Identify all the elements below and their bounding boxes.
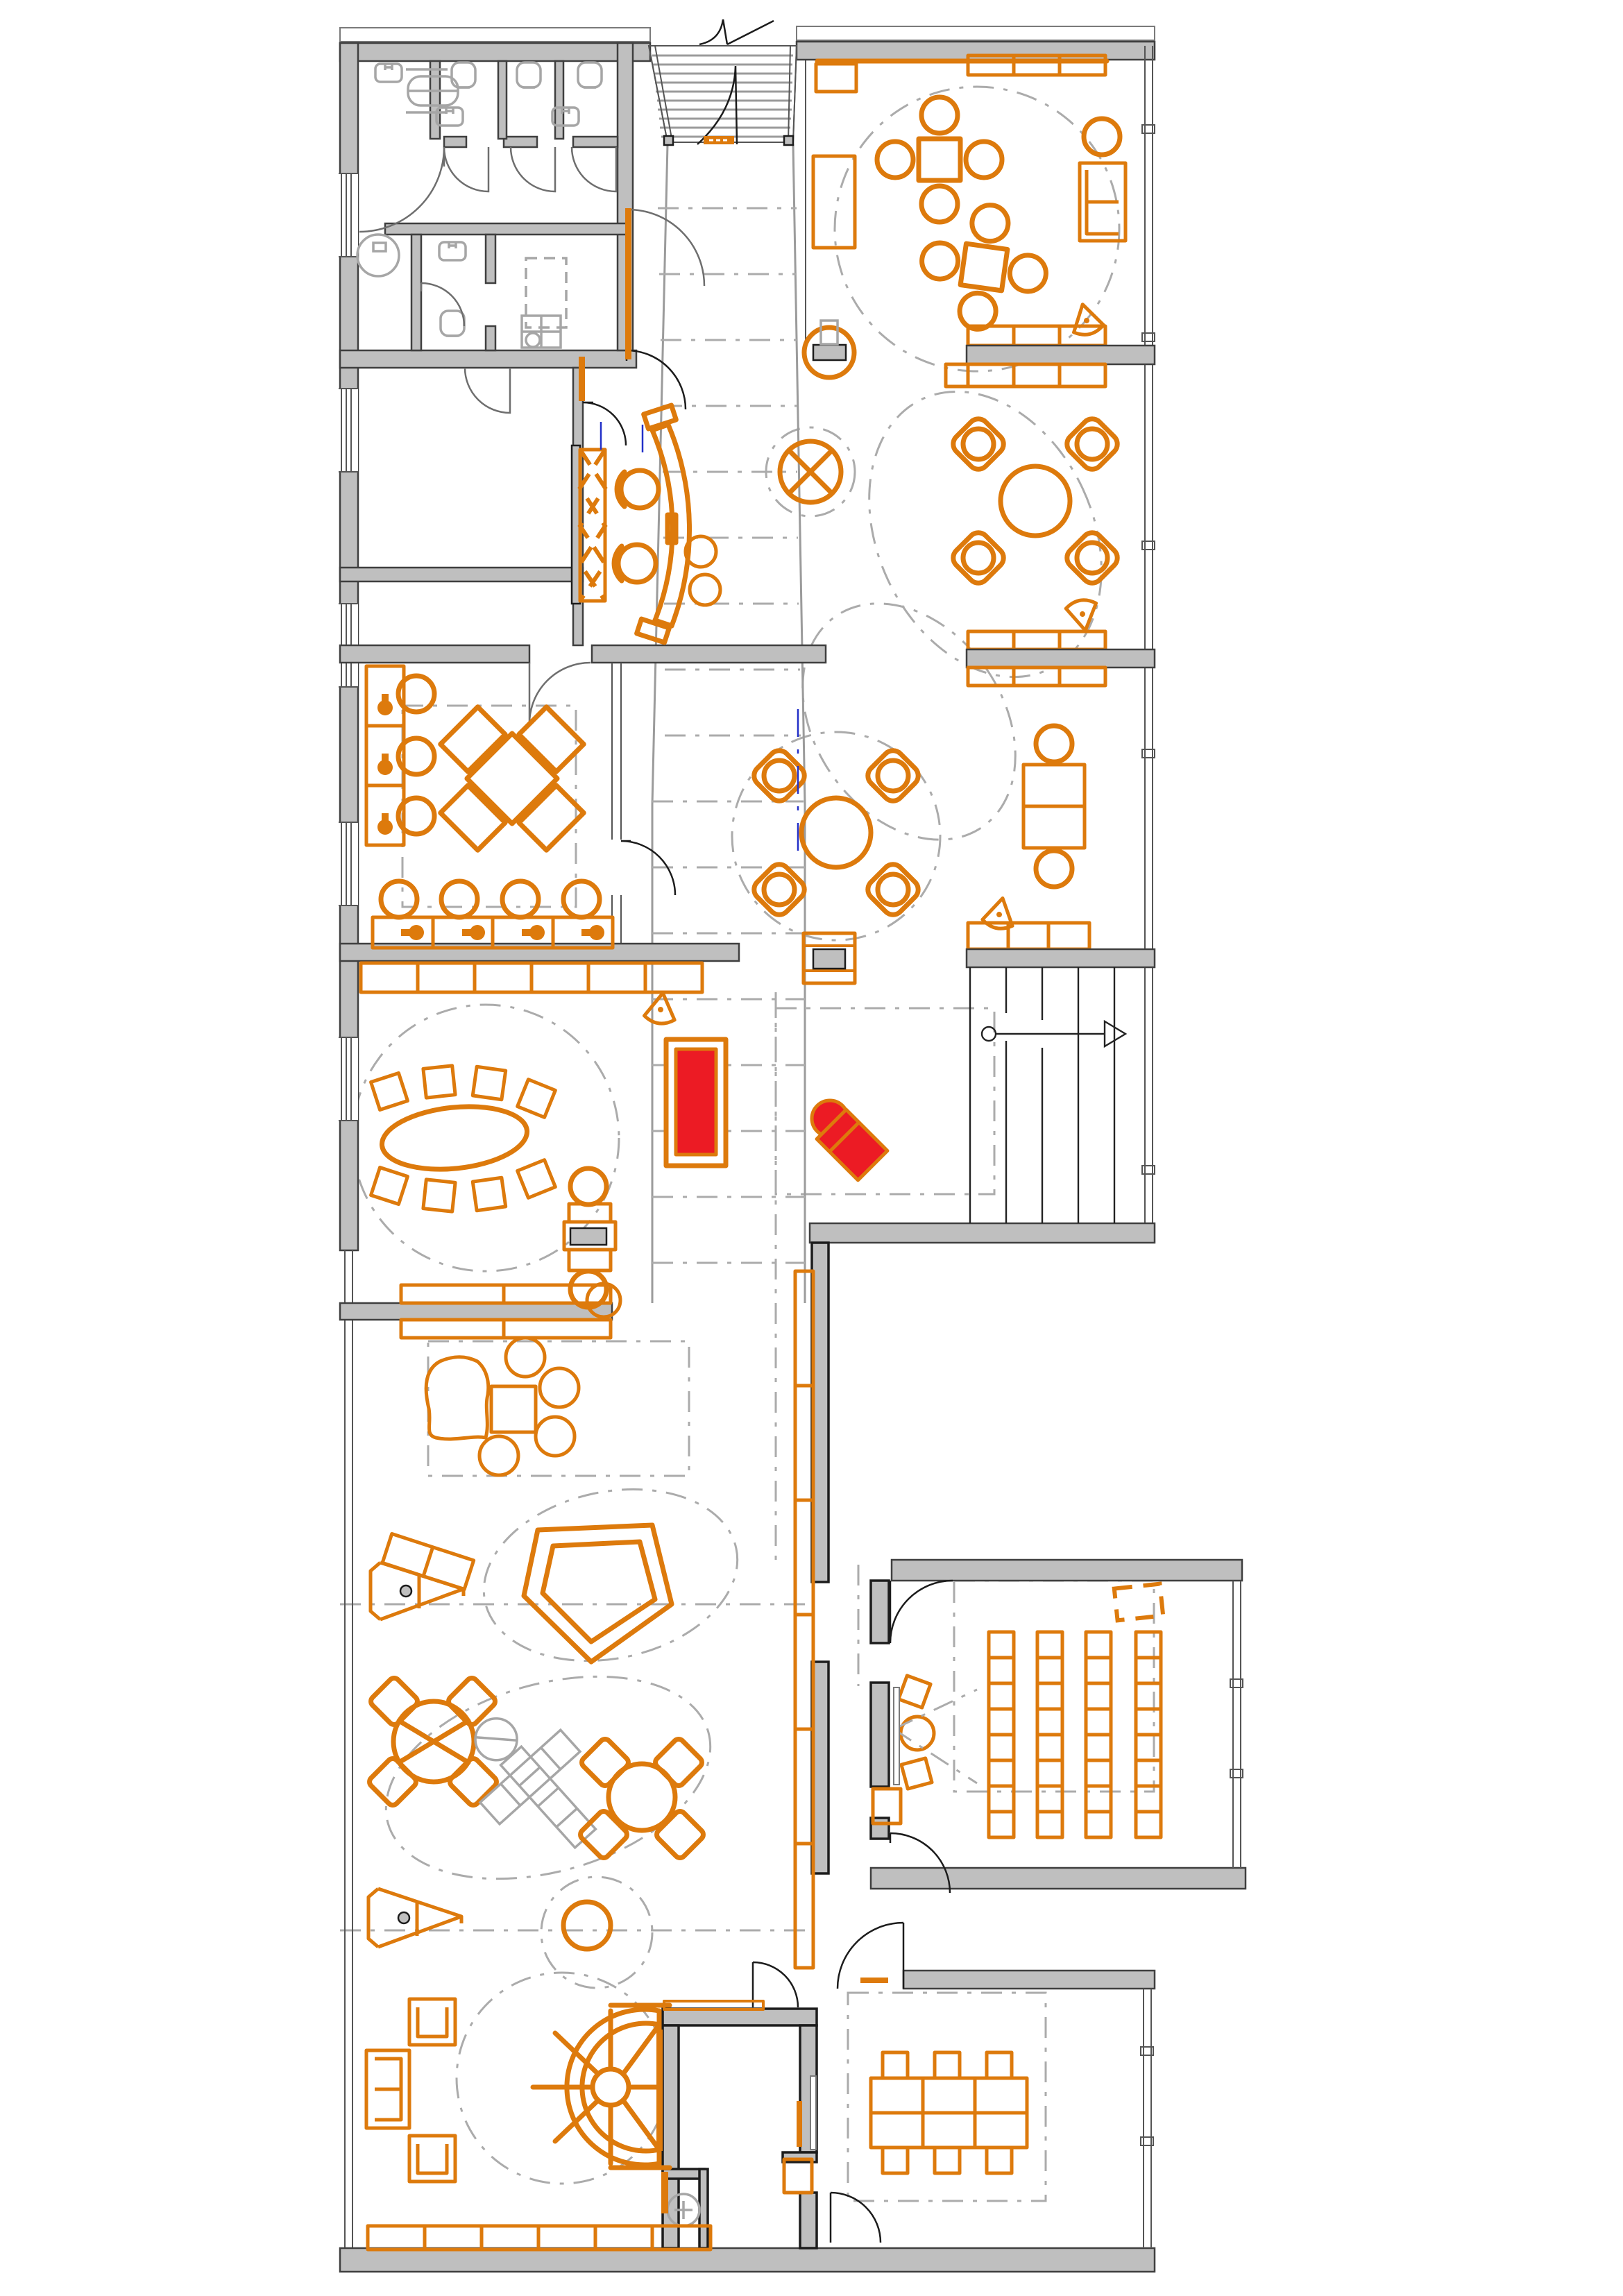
- wc-stall-partition-b: [555, 61, 563, 139]
- wall-right-glazing-upper: [1145, 46, 1153, 1225]
- vestibule-door: [697, 66, 737, 144]
- wall-classroom-left-b: [871, 1683, 889, 1787]
- wall-meeting-top: [903, 1971, 1155, 1989]
- kitchen-sink-icon: [522, 316, 561, 348]
- toilet-icon: [578, 62, 602, 87]
- red-rug: [666, 1039, 726, 1166]
- reception-chair: [614, 545, 656, 582]
- cabinet: [784, 2159, 812, 2193]
- wall-stub-lounge: [967, 649, 1155, 667]
- orange-wall-strip: [860, 1978, 888, 1983]
- door-wc-stall-3: [572, 147, 616, 192]
- task-chair: [441, 881, 477, 917]
- wall-stair-hall-bottom: [810, 1223, 1155, 1243]
- round-chair: [1036, 726, 1072, 762]
- sink-icon: [439, 242, 466, 260]
- door-storage-b: [583, 402, 626, 445]
- wc-lower-partition-c: [486, 326, 495, 350]
- reading-room-top-right: [804, 56, 1155, 386]
- shelf-above-storage: [664, 2001, 763, 2009]
- round-sink-icon: [357, 235, 399, 276]
- zone-beanbag: [541, 1877, 652, 1988]
- ramp-threshold: [704, 136, 734, 144]
- kids-round-table: [367, 1676, 499, 1808]
- projection-screen-dashed: [1114, 1584, 1163, 1621]
- orange-wall-strip: [625, 208, 631, 359]
- shelf-below-stub2: [968, 667, 1105, 686]
- chair-row: [1136, 1632, 1161, 1837]
- wall-stub-stair-top: [967, 949, 1155, 967]
- wall-storage-left: [663, 2025, 679, 2248]
- oval-table: [379, 1100, 530, 1175]
- bean-bag: [563, 1902, 611, 1949]
- organic-sofa: [426, 1357, 488, 1439]
- meeting-whiteboard: [810, 2076, 816, 2150]
- reception-chair: [617, 470, 658, 508]
- floor-plan-drawing: Library first-floor furniture plan: [0, 0, 1623, 2296]
- wall-classroom-glazing: [1233, 1581, 1241, 1868]
- tutor-desk: [1023, 765, 1085, 848]
- window: [339, 173, 358, 257]
- media-desk: [564, 1204, 615, 1270]
- column-light-icon: [780, 441, 841, 502]
- toilet-icon: [441, 311, 464, 336]
- corridor-edge-right: [793, 144, 805, 1303]
- wall-storage-right-b: [800, 2193, 817, 2248]
- door-wc-block-entry: [359, 147, 444, 232]
- door-wc-stall-2: [511, 147, 555, 192]
- tilted-shelf: [382, 1534, 474, 1590]
- shelf-stair-top: [968, 923, 1089, 949]
- wall-xroom-top-a: [340, 645, 529, 663]
- classroom-whiteboard: [894, 1687, 899, 1785]
- window: [339, 389, 358, 472]
- cafe-table-4-chairs: [877, 97, 1002, 222]
- wall-storage-top: [663, 2009, 817, 2025]
- sink-icon: [375, 64, 402, 82]
- media-display-table: [804, 933, 855, 983]
- window: [339, 822, 358, 905]
- triangle-stool-icon: [981, 895, 1017, 931]
- workroom-x-table: [366, 666, 618, 948]
- chair-row: [1086, 1632, 1111, 1837]
- toilet-icon: [452, 62, 475, 87]
- wall-meeting-glazing: [1144, 1989, 1151, 2248]
- wall-xroom-top-b: [592, 645, 826, 663]
- pouf: [506, 1338, 545, 1377]
- classroom: [860, 1584, 1163, 1983]
- door-xroom-right: [621, 841, 675, 895]
- pouf: [540, 1368, 579, 1407]
- chair-row: [989, 1632, 1014, 1837]
- wall-stub-oval-room: [340, 1303, 612, 1320]
- diamond-chair-cluster: [949, 415, 1122, 588]
- chair-row: [1037, 1632, 1062, 1837]
- shelf-run-top: [361, 963, 702, 992]
- triangle-stool-icon: [1065, 597, 1101, 633]
- wc-stall-front-a: [444, 137, 466, 147]
- wall-xroom-right: [612, 663, 621, 944]
- door-wc-stall-1: [444, 147, 488, 192]
- wall-wc-partition-h: [663, 2169, 704, 2179]
- lounge-zones-right: [750, 415, 1155, 983]
- triangle-stool-icon: [1068, 300, 1105, 337]
- wall-storageA-top: [340, 350, 636, 368]
- wall-top-left: [340, 43, 650, 61]
- canopy-right: [797, 26, 1155, 40]
- ramp-hatching: [652, 56, 793, 137]
- orange-wall-strip: [579, 357, 585, 401]
- shelf-above-stub-left: [401, 1285, 611, 1303]
- lounge-bottom-left: [366, 1999, 455, 2182]
- presenter-spot: [894, 1676, 977, 1789]
- reception: [572, 208, 798, 853]
- wc-stall-front-c: [573, 137, 618, 147]
- armchair: [409, 1999, 455, 2045]
- wall-stub-reading: [967, 346, 1155, 364]
- ramp-post-left: [664, 136, 673, 145]
- person-at-screen: [804, 321, 854, 377]
- curved-reception-desk: [637, 405, 690, 643]
- sanitary-fixtures: [357, 62, 699, 2226]
- pouf: [536, 1417, 575, 1456]
- toilet-icon: [517, 62, 541, 87]
- sofa: [366, 2050, 409, 2128]
- spiral-amphitheater: [533, 2005, 670, 2213]
- play-easel: [368, 1889, 461, 1947]
- diamond-chair-cluster: [750, 747, 923, 919]
- window: [339, 1037, 358, 1121]
- x-table-group: [406, 672, 618, 884]
- entrance-ramp: [649, 19, 797, 145]
- door-storage-a: [465, 368, 510, 413]
- armchair: [409, 2136, 455, 2182]
- desk-lamp-icons: [377, 694, 393, 835]
- shelf-below-stub-left: [401, 1320, 611, 1338]
- stair-treads: [970, 967, 1114, 1223]
- display-box: [816, 64, 856, 92]
- coat-rack: [572, 445, 605, 604]
- zone-meeting-room: [848, 1993, 1046, 2201]
- floor-plan-page: Library first-floor furniture plan: [0, 0, 1623, 2296]
- wc-corridor-wall: [385, 223, 628, 235]
- wall-classroom-left-a: [871, 1581, 889, 1643]
- canopy-left: [340, 28, 650, 42]
- stool: [690, 575, 720, 605]
- cafe-table-4-chairs: [913, 196, 1054, 337]
- pentagon-play-house: [524, 1525, 672, 1662]
- play-easel: [371, 1563, 464, 1619]
- square-table: [491, 1386, 536, 1432]
- meeting-room: [784, 2052, 1027, 2193]
- bookshelf-wall: [795, 1271, 813, 1968]
- kids-round-table: [578, 1737, 706, 1860]
- wc-lower-partition-b: [486, 235, 495, 283]
- wall-left-lower-glazing: [345, 1250, 352, 2250]
- entry-door-leaves: [699, 19, 774, 44]
- meeting-table: [871, 2078, 1027, 2148]
- round-chair: [570, 1168, 606, 1205]
- pouf: [479, 1436, 518, 1475]
- wall-wc-partition-v: [699, 2169, 708, 2248]
- round-chair: [1036, 851, 1072, 887]
- round-chair: [1084, 119, 1120, 155]
- wall-storageAB-divider: [340, 568, 583, 581]
- zone-red-corner: [776, 1008, 994, 1194]
- wc-stall-front-b: [504, 137, 537, 147]
- task-chair: [502, 881, 538, 917]
- task-chair: [381, 881, 417, 917]
- shelf-below-stub: [946, 364, 1105, 386]
- stair-direction-arrow: [982, 1021, 1125, 1046]
- triangle-stool-icon: [643, 991, 678, 1026]
- sink-tap-icon: [373, 243, 386, 251]
- accessible-toilet-icon: [406, 69, 458, 112]
- task-chair: [563, 881, 600, 917]
- door-classroom-top: [890, 1581, 953, 1643]
- ramp-post-right: [784, 136, 793, 145]
- wall-classroom-bottom: [871, 1868, 1246, 1889]
- oval-meeting-zone: [361, 963, 702, 1338]
- door-wc-small: [421, 283, 464, 326]
- wc-stall-partition-a: [498, 61, 507, 139]
- wc-lower-partition-a: [411, 235, 421, 350]
- orange-wall-strip: [797, 2101, 802, 2147]
- wall-classroom-top: [892, 1560, 1242, 1581]
- shelf-run-bottom: [368, 2226, 711, 2250]
- wc-stall-partition-c: [430, 61, 440, 139]
- wall-bottom: [340, 2248, 1155, 2272]
